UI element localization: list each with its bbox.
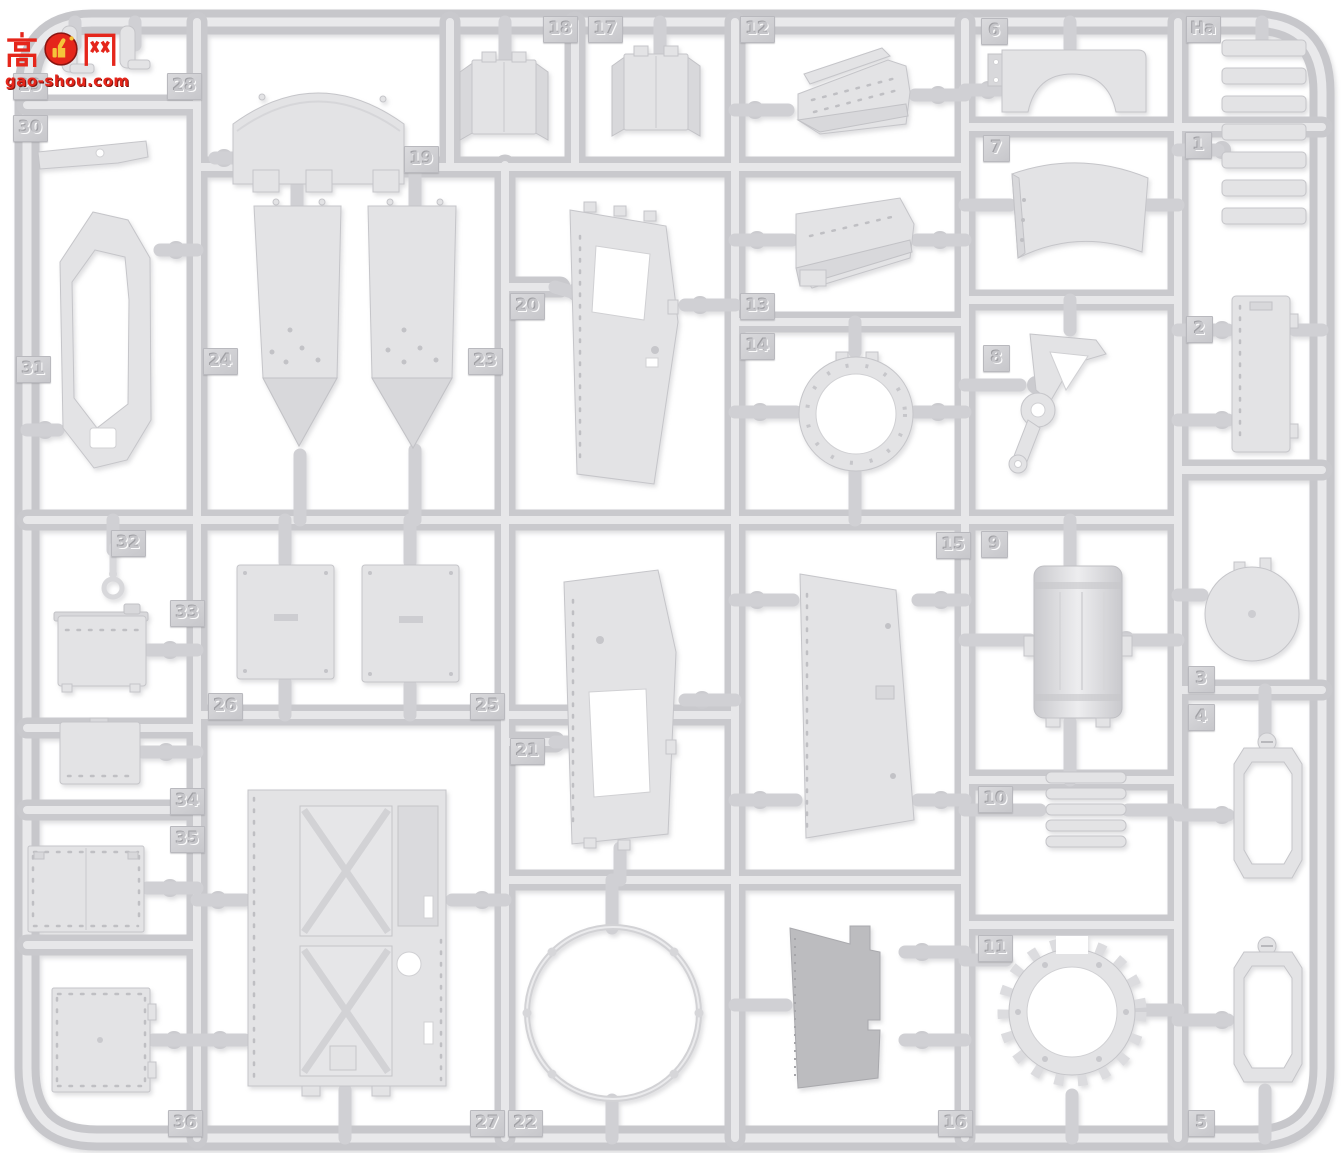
part-tag-2: 2 (1186, 316, 1213, 343)
part-22-ring (523, 927, 704, 1099)
part-24-panel (254, 199, 341, 446)
sprue-graphic (0, 0, 1344, 1153)
watermark: gao-shou.com (3, 30, 213, 90)
part-tag-14: 14 (740, 333, 775, 360)
part-tag-21: 21 (510, 738, 545, 765)
part-20-door (570, 202, 678, 484)
part-26-hatch (237, 565, 334, 679)
part-tag-18: 18 (543, 16, 578, 43)
part-tag-35: 35 (170, 826, 205, 853)
part-18 (460, 52, 548, 140)
part-35-plate (28, 846, 144, 932)
part-tag-13: 13 (740, 293, 775, 320)
part-tag-22: 22 (508, 1110, 543, 1137)
part-19-windshield (233, 93, 404, 192)
part-tag-19: 19 (404, 146, 439, 173)
part-tag-30: 30 (13, 115, 48, 142)
part-11-toothed-ring (1004, 936, 1140, 1080)
part-3-hatch (1205, 558, 1299, 661)
part-21-door (564, 570, 676, 850)
part-33-tank (54, 604, 148, 692)
part-tag-6: 6 (981, 18, 1008, 45)
part-23-panel (368, 199, 456, 448)
part-16-plate (790, 926, 880, 1088)
part-14-ring (799, 352, 913, 471)
part-tag-36: 36 (168, 1110, 203, 1137)
watermark-brand (3, 30, 213, 68)
part-2-door (1232, 296, 1298, 452)
part-tag-4: 4 (1188, 704, 1215, 731)
part-4-frame (1234, 733, 1302, 878)
part-tag-7: 7 (983, 135, 1010, 162)
part-9-drum (1024, 566, 1132, 727)
part-27-hull-panel (248, 790, 446, 1096)
part-tag-1: 1 (1185, 132, 1212, 159)
part-tag-33: 33 (170, 600, 205, 627)
part-30 (38, 141, 148, 169)
part-tag-23: 23 (468, 348, 503, 375)
part-tag-31: 31 (16, 356, 51, 383)
part-tag-Ha: Ha (1186, 16, 1221, 43)
part-tag-10: 10 (978, 786, 1013, 813)
part-tag-15: 15 (936, 532, 971, 559)
part-10-grille (1046, 772, 1126, 847)
watermark-domain: gao-shou.com (5, 72, 213, 90)
part-tag-12: 12 (740, 16, 775, 43)
part-tag-24: 24 (203, 348, 238, 375)
part-17 (612, 46, 700, 136)
part-tag-20: 20 (510, 293, 545, 320)
part-25-hatch (362, 565, 459, 682)
part-tag-3: 3 (1188, 666, 1215, 693)
watermark-char-gao (3, 30, 41, 68)
part-tag-25: 25 (470, 693, 505, 720)
part-34-box (60, 718, 140, 784)
part-tag-16: 16 (938, 1110, 973, 1137)
part-tag-27: 27 (470, 1110, 505, 1137)
part-tag-32: 32 (111, 530, 146, 557)
part-12 (798, 48, 910, 134)
part-tag-26: 26 (208, 693, 243, 720)
part-5-frame (1234, 937, 1302, 1082)
part-tag-34: 34 (170, 788, 205, 815)
thumb-up-icon (43, 31, 79, 67)
watermark-char-wang (81, 30, 119, 68)
part-15-panel (800, 574, 914, 838)
part-tag-8: 8 (983, 345, 1010, 372)
part-31 (60, 212, 151, 468)
part-tag-5: 5 (1188, 1110, 1215, 1137)
part-tag-11: 11 (978, 935, 1013, 962)
part-13 (796, 198, 914, 288)
part-36-plate (52, 988, 156, 1092)
part-tag-9: 9 (981, 531, 1008, 558)
part-7-curved-panel (1012, 163, 1148, 258)
sprue-photo: 2930313233343536281924232625272220211817… (0, 0, 1344, 1153)
part-1-grille-stack (1222, 40, 1306, 224)
part-6-fender (988, 50, 1146, 112)
part-8-suspension-arm (1009, 334, 1106, 473)
part-tag-17: 17 (588, 16, 623, 43)
